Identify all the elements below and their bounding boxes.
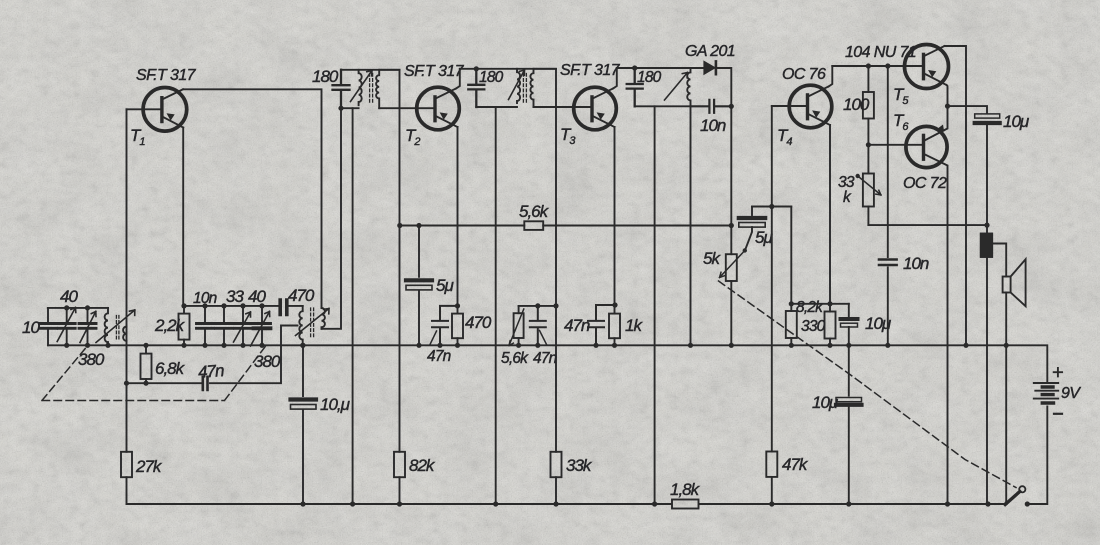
svg-text:47n: 47n (427, 348, 451, 365)
svg-text:82k: 82k (409, 456, 436, 475)
svg-text:40: 40 (248, 287, 266, 306)
svg-text:47k: 47k (782, 455, 809, 474)
svg-text:10n: 10n (903, 254, 929, 273)
svg-text:10n: 10n (700, 116, 726, 135)
svg-text:10μ: 10μ (1003, 112, 1030, 131)
svg-text:47n: 47n (197, 361, 224, 382)
svg-text:1,8k: 1,8k (670, 480, 701, 499)
svg-text:100: 100 (843, 95, 870, 114)
svg-text:180: 180 (479, 69, 504, 86)
svg-text:470: 470 (288, 286, 315, 305)
svg-text:104 NU 71: 104 NU 71 (845, 44, 916, 61)
svg-text:180: 180 (312, 67, 339, 86)
svg-text:2,2k: 2,2k (154, 316, 186, 335)
svg-text:SF.T 317: SF.T 317 (136, 67, 197, 84)
svg-text:8,2k: 8,2k (796, 299, 824, 316)
svg-text:10μ: 10μ (812, 393, 839, 412)
svg-text:380: 380 (254, 352, 281, 371)
svg-text:SF.T 317: SF.T 317 (404, 63, 465, 80)
svg-text:GA 201: GA 201 (685, 43, 735, 60)
svg-text:47n: 47n (564, 316, 590, 335)
svg-text:OC 72: OC 72 (903, 175, 947, 192)
svg-text:5,6k: 5,6k (501, 350, 529, 367)
svg-text:OC 76: OC 76 (782, 66, 826, 83)
svg-text:6,8k: 6,8k (155, 359, 186, 378)
svg-text:5μ: 5μ (755, 228, 773, 247)
svg-text:330: 330 (801, 318, 826, 335)
svg-text:5k: 5k (703, 249, 721, 268)
svg-text:1k: 1k (625, 316, 643, 335)
svg-text:33k: 33k (566, 456, 593, 475)
svg-text:180: 180 (637, 69, 662, 86)
svg-text:10n: 10n (193, 290, 217, 307)
svg-text:10: 10 (22, 318, 40, 337)
svg-text:40: 40 (60, 287, 78, 306)
svg-text:470: 470 (465, 313, 492, 332)
svg-text:SF.T 317: SF.T 317 (560, 62, 621, 79)
svg-text:5,6k: 5,6k (519, 202, 550, 221)
svg-text:27k: 27k (135, 457, 163, 476)
svg-text:33: 33 (226, 287, 244, 306)
svg-text:10,μ: 10,μ (320, 395, 351, 414)
svg-text:9V: 9V (1061, 385, 1081, 402)
svg-text:5μ: 5μ (436, 276, 454, 295)
svg-text:47n: 47n (533, 350, 557, 367)
